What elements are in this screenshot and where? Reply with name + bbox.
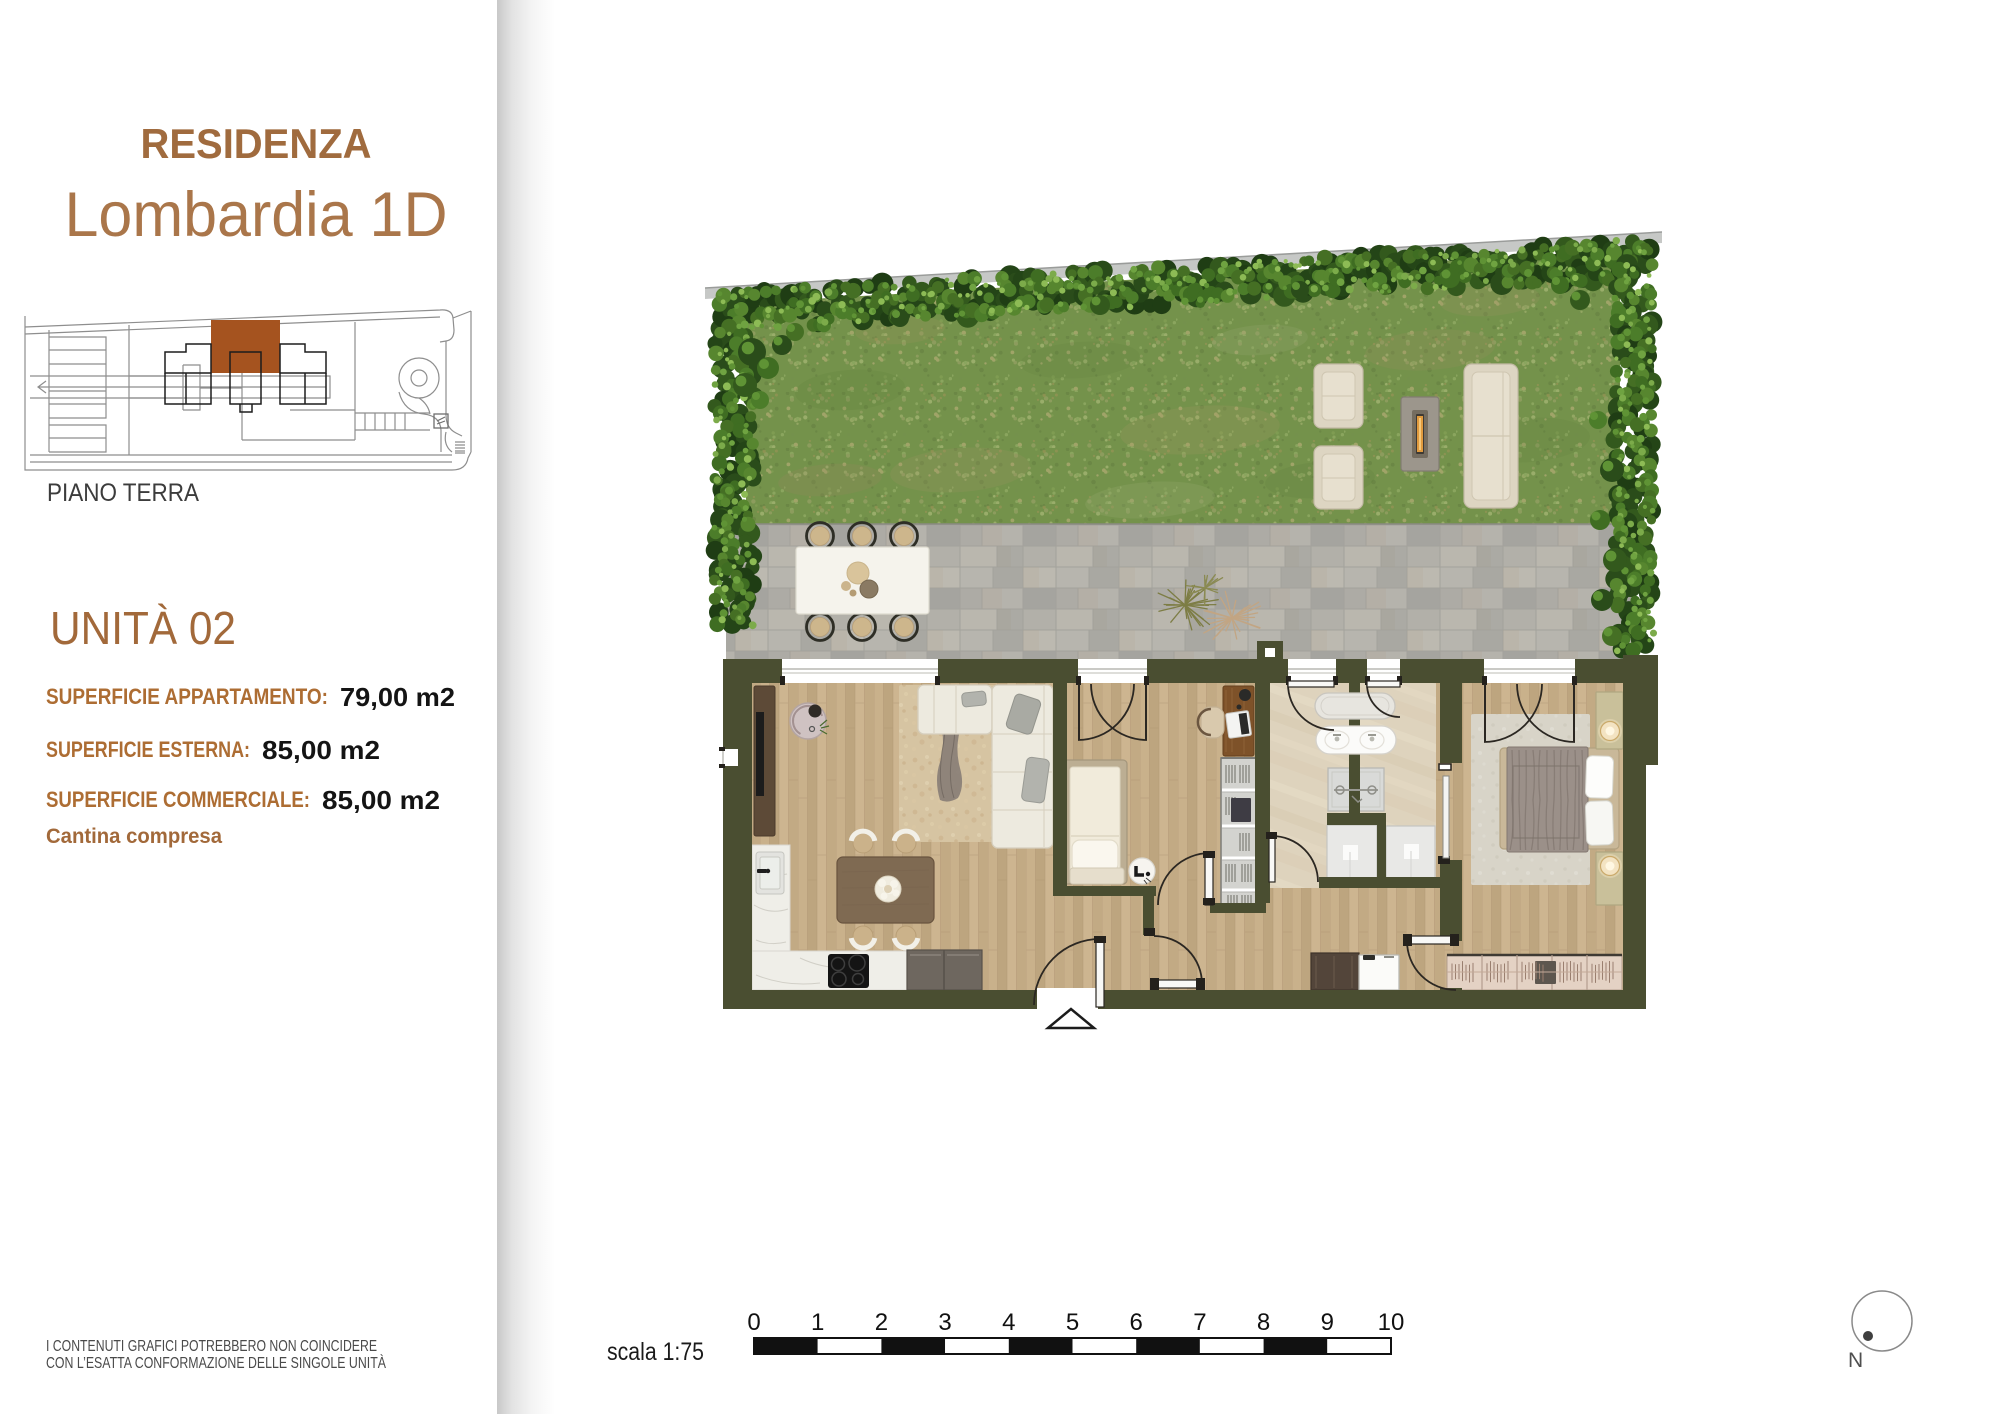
svg-text:5: 5 (1066, 1309, 1079, 1336)
svg-text:8: 8 (1257, 1309, 1270, 1336)
svg-text:3: 3 (938, 1309, 951, 1336)
svg-text:85,00 m2: 85,00 m2 (322, 785, 440, 815)
svg-text:SUPERFICIE ESTERNA:: SUPERFICIE ESTERNA: (46, 737, 250, 762)
svg-text:scala 1:75: scala 1:75 (607, 1338, 704, 1366)
svg-text:4: 4 (1002, 1309, 1015, 1336)
svg-text:79,00 m2: 79,00 m2 (340, 682, 455, 712)
svg-text:10: 10 (1378, 1309, 1405, 1336)
svg-text:Lombardia 1D: Lombardia 1D (65, 180, 448, 250)
svg-text:6: 6 (1130, 1309, 1143, 1336)
svg-text:85,00 m2: 85,00 m2 (262, 735, 380, 765)
svg-text:CON L’ESATTA CONFORMAZIONE DEL: CON L’ESATTA CONFORMAZIONE DELLE SINGOLE… (46, 1355, 387, 1372)
svg-text:0: 0 (747, 1309, 760, 1336)
svg-text:I CONTENUTI GRAFICI POTREBBERO: I CONTENUTI GRAFICI POTREBBERO NON COINC… (46, 1338, 377, 1355)
svg-text:1: 1 (811, 1309, 824, 1336)
svg-text:9: 9 (1321, 1309, 1334, 1336)
svg-text:N: N (1848, 1349, 1863, 1372)
svg-text:7: 7 (1193, 1309, 1206, 1336)
svg-text:Cantina compresa: Cantina compresa (46, 825, 222, 848)
svg-text:RESIDENZA: RESIDENZA (141, 120, 372, 167)
svg-text:2: 2 (875, 1309, 888, 1336)
svg-text:SUPERFICIE COMMERCIALE:: SUPERFICIE COMMERCIALE: (46, 787, 310, 812)
svg-text:SUPERFICIE APPARTAMENTO:: SUPERFICIE APPARTAMENTO: (46, 684, 328, 709)
svg-text:UNITÀ 02: UNITÀ 02 (50, 602, 236, 654)
svg-text:PIANO TERRA: PIANO TERRA (47, 479, 199, 507)
